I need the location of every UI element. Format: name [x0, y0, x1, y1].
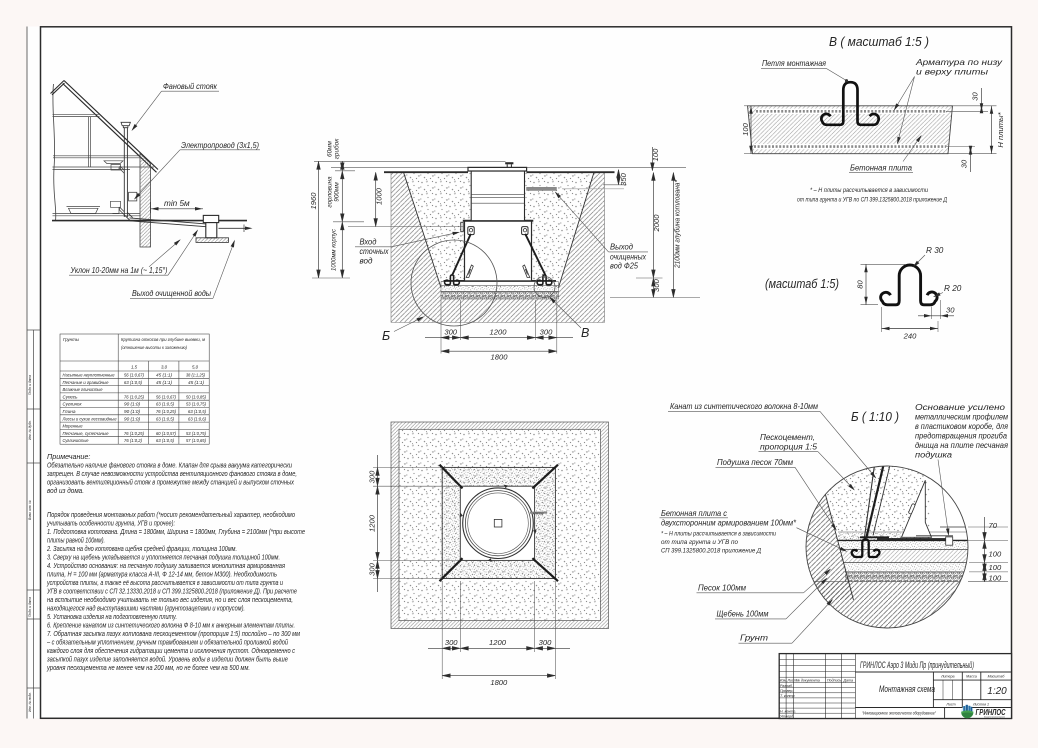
svg-text:клапан: клапан	[533, 512, 544, 516]
svg-text:(масштаб 1:5): (масштаб 1:5)	[765, 277, 839, 291]
svg-text:Щебень 100мм: Щебень 100мм	[717, 610, 769, 619]
svg-text:ГРИНЛОС Аэро 3 Миди Пр (принуд: ГРИНЛОС Аэро 3 Миди Пр (принудительный)	[860, 660, 974, 670]
svg-text:900мм: 900мм	[334, 182, 341, 202]
svg-text:Н. контр.: Н. контр.	[780, 709, 796, 713]
svg-text:53 (1:0,75): 53 (1:0,75)	[186, 402, 206, 407]
svg-text:Литера: Литера	[940, 675, 954, 679]
svg-text:организовать вентиляционный ст: организовать вентиляционный стояк в пром…	[47, 478, 294, 487]
svg-text:Суглинистые: Суглинистые	[63, 438, 90, 443]
svg-text:Основание усилено: Основание усилено	[915, 403, 1006, 412]
svg-text:Масса: Масса	[966, 675, 977, 679]
svg-text:53 (1:0,75): 53 (1:0,75)	[186, 431, 206, 436]
svg-text:50 (1:0,85): 50 (1:0,85)	[186, 394, 206, 399]
svg-text:63 (1:0,5): 63 (1:0,5)	[156, 438, 175, 443]
svg-text:СП 399.1325800.2018 приложение: СП 399.1325800.2018 приложение Д	[661, 548, 761, 555]
svg-text:Глина: Глина	[63, 409, 77, 414]
svg-text:* – Н плиты рассчитывается в з: * – Н плиты рассчитывается в зависимости	[661, 531, 776, 538]
svg-text:Лессы и сухие лессовидные: Лессы и сухие лессовидные	[62, 416, 117, 421]
svg-text:Подп. и дата: Подп. и дата	[28, 375, 32, 395]
svg-text:300: 300	[540, 328, 553, 337]
svg-text:56 (1:0,67): 56 (1:0,67)	[156, 394, 176, 399]
svg-text:уровня пескоцемента не менее ч: уровня пескоцемента не менее чем на 200 …	[46, 663, 250, 672]
svg-text:подушка: подушка	[915, 451, 952, 460]
svg-text:Пескоцемент,: Пескоцемент,	[760, 433, 815, 442]
svg-text:1200: 1200	[489, 638, 507, 647]
svg-text:Бетонная плита: Бетонная плита	[850, 164, 912, 173]
svg-text:Утверд.: Утверд.	[780, 714, 794, 718]
svg-text:90 (1:0): 90 (1:0)	[124, 409, 141, 414]
svg-text:300: 300	[368, 562, 377, 575]
svg-text:300: 300	[539, 638, 552, 647]
svg-text:63 (1:0,5): 63 (1:0,5)	[156, 416, 175, 421]
svg-text:38 (1:1,25): 38 (1:1,25)	[186, 373, 205, 378]
svg-text:76 (1:0,25): 76 (1:0,25)	[156, 409, 176, 414]
svg-text:В: В	[581, 326, 589, 340]
svg-text:56 (1:0,67): 56 (1:0,67)	[124, 373, 144, 378]
svg-text:1000мм корпус: 1000мм корпус	[331, 228, 338, 271]
svg-text:Петля монтажная: Петля монтажная	[762, 59, 827, 68]
svg-text:вод Ф25: вод Ф25	[610, 262, 638, 271]
svg-text:Вход: Вход	[360, 238, 377, 247]
svg-text:вод из дома.: вод из дома.	[47, 486, 84, 495]
svg-text:min 5м: min 5м	[164, 199, 190, 208]
svg-text:Масштаб: Масштаб	[988, 675, 1006, 679]
svg-text:Канат из синтетического волокн: Канат из синтетического волокна 8-10мм	[670, 402, 818, 411]
svg-text:Песчаные, супесчаные: Песчаные, супесчаные	[63, 431, 110, 436]
svg-text:днища на плите песчаная: днища на плите песчаная	[915, 441, 1009, 450]
svg-text:"Инновационное экологическое о: "Инновационное экологическое оборудовани…	[862, 711, 936, 716]
svg-text:Крутизна откосов при глубине в: Крутизна откосов при глубине выемки, м	[121, 337, 205, 342]
svg-text:30: 30	[946, 306, 955, 315]
svg-text:Уклон 10-20мм на 1м (~ 1,15°): Уклон 10-20мм на 1м (~ 1,15°)	[70, 266, 168, 275]
svg-text:Взам. инв. №: Взам. инв. №	[28, 500, 32, 520]
svg-text:57 (1:0,65): 57 (1:0,65)	[186, 438, 206, 443]
svg-text:63 (1:0,5): 63 (1:0,5)	[188, 409, 207, 414]
svg-text:76 (1:0,2): 76 (1:0,2)	[124, 438, 143, 443]
svg-text:Влажные глинистые: Влажные глинистые	[63, 387, 104, 392]
svg-text:3,0: 3,0	[161, 365, 168, 370]
svg-text:30: 30	[971, 92, 980, 101]
svg-text:2100мм глубина котлована*: 2100мм глубина котлована*	[673, 179, 682, 269]
svg-text:пропорция 1:5: пропорция 1:5	[760, 443, 817, 452]
svg-text:Н плиты*: Н плиты*	[996, 111, 1005, 147]
svg-text:100: 100	[989, 563, 1002, 572]
svg-text:Песчаные и гравийные: Песчаные и гравийные	[63, 380, 110, 385]
svg-text:Подушка песок 70мм: Подушка песок 70мм	[717, 458, 793, 467]
svg-text:63 (1:0,5): 63 (1:0,5)	[124, 380, 143, 385]
svg-text:1960: 1960	[309, 192, 318, 210]
svg-text:Дата: Дата	[843, 679, 853, 683]
svg-text:76 (1:0,25): 76 (1:0,25)	[124, 431, 144, 436]
svg-text:Монтажная схема: Монтажная схема	[879, 684, 935, 694]
svg-text:* – Н плиты рассчитывается в з: * – Н плиты рассчитывается в зависимости	[810, 187, 928, 194]
svg-text:Инв. № подл.: Инв. № подл.	[28, 692, 32, 712]
svg-text:грибок: грибок	[333, 138, 341, 159]
svg-text:в пластиковом коробе, для: в пластиковом коробе, для	[915, 422, 1009, 431]
svg-text:300: 300	[368, 470, 377, 483]
svg-text:Насыпные неуплотненные: Насыпные неуплотненные	[63, 373, 116, 378]
svg-text:Грунт: Грунт	[740, 634, 768, 643]
svg-text:очищенных: очищенных	[610, 252, 647, 261]
svg-text:100: 100	[741, 122, 750, 135]
svg-text:R 30: R 30	[926, 246, 944, 255]
svg-text:металлическим профилем: металлическим профилем	[915, 413, 1008, 422]
svg-text:63 (1:0,5): 63 (1:0,5)	[156, 402, 175, 407]
svg-text:60 (1:0,57): 60 (1:0,57)	[156, 431, 176, 436]
svg-text:Моренные: Моренные	[63, 424, 84, 429]
svg-text:от типа грунта и УГВ по: от типа грунта и УГВ по	[661, 539, 738, 546]
svg-text:45 (1:1): 45 (1:1)	[188, 380, 205, 385]
svg-text:300: 300	[445, 638, 458, 647]
svg-text:предотвращения прогиба: предотвращения прогиба	[915, 432, 1007, 441]
svg-text:Б: Б	[382, 329, 390, 343]
svg-text:R 20: R 20	[944, 284, 962, 293]
svg-text:Супесь: Супесь	[63, 394, 79, 399]
svg-text:Выход: Выход	[610, 243, 633, 252]
svg-text:двухсторонним армированием 100: двухсторонним армированием 100мм*	[661, 519, 797, 528]
svg-text:100: 100	[989, 550, 1002, 559]
svg-text:Провер.: Провер.	[780, 689, 793, 693]
svg-text:1800: 1800	[491, 353, 509, 362]
svg-text:80: 80	[856, 280, 865, 289]
svg-text:1:20: 1:20	[987, 686, 1007, 697]
svg-text:и верху плиты: и верху плиты	[916, 68, 988, 77]
svg-text:1,5: 1,5	[131, 365, 138, 370]
svg-text:Изм.Лист: Изм.Лист	[780, 679, 797, 683]
svg-text:30: 30	[960, 159, 969, 168]
svg-text:В ( масштаб 1:5 ): В ( масштаб 1:5 )	[829, 35, 929, 49]
svg-text:от типа грунта и УГВ по СП 399: от типа грунта и УГВ по СП 399.1325800.2…	[797, 197, 947, 204]
svg-text:Грунты: Грунты	[63, 337, 80, 342]
svg-text:60мм: 60мм	[327, 140, 334, 156]
svg-text:Т. контр: Т. контр	[780, 694, 795, 698]
svg-text:70: 70	[989, 521, 998, 530]
svg-text:горловина: горловина	[327, 176, 334, 208]
svg-text:Фановый стояк: Фановый стояк	[163, 82, 218, 91]
svg-text:300: 300	[652, 278, 661, 291]
svg-text:(отношение высоты к заложению): (отношение высоты к заложению)	[121, 345, 187, 350]
svg-text:1800: 1800	[490, 678, 508, 687]
svg-text:63 (1:0,6): 63 (1:0,6)	[188, 416, 207, 421]
svg-text:1200: 1200	[490, 328, 508, 337]
svg-text:Электропровод (3х1,5): Электропровод (3х1,5)	[181, 141, 259, 150]
svg-text:Бетонная плита с: Бетонная плита с	[661, 509, 727, 518]
svg-text:Арматура по низу: Арматура по низу	[915, 58, 1003, 67]
svg-text:ГРИНЛОС: ГРИНЛОС	[976, 708, 1006, 717]
svg-text:300: 300	[444, 328, 457, 337]
svg-text:Листов 1: Листов 1	[972, 703, 989, 707]
svg-text:90 (1:0): 90 (1:0)	[124, 402, 141, 407]
svg-text:№ документа: № документа	[796, 679, 820, 683]
svg-text:45 (1:1): 45 (1:1)	[156, 380, 173, 385]
svg-text:Подпись: Подпись	[827, 679, 841, 683]
svg-text:вод: вод	[360, 256, 373, 265]
svg-text:Разраб.: Разраб.	[780, 684, 793, 688]
svg-text:1200: 1200	[368, 514, 377, 532]
svg-text:100: 100	[989, 574, 1002, 583]
svg-text:90 (1:0): 90 (1:0)	[124, 416, 141, 421]
svg-text:2000: 2000	[652, 214, 661, 233]
svg-text:Инновационное экологическое об: Инновационное экологическое оборудование	[984, 716, 1005, 719]
svg-text:Инв. № дубл.: Инв. № дубл.	[28, 420, 32, 440]
svg-text:350: 350	[619, 172, 628, 185]
svg-text:Песок 100мм: Песок 100мм	[698, 584, 746, 593]
svg-text:1000: 1000	[375, 187, 384, 205]
svg-text:5,0: 5,0	[192, 365, 199, 370]
svg-text:Лист: Лист	[945, 703, 955, 707]
svg-text:100: 100	[651, 148, 660, 161]
svg-text:Подп. и дата: Подп. и дата	[28, 597, 32, 617]
svg-text:сточных: сточных	[360, 247, 390, 256]
svg-text:Выход очищенной воды: Выход очищенной воды	[132, 289, 211, 298]
svg-text:Суглинок: Суглинок	[63, 402, 83, 407]
svg-text:Б ( 1:10 ): Б ( 1:10 )	[851, 410, 899, 424]
svg-text:240: 240	[903, 332, 917, 341]
svg-text:45 (1:1): 45 (1:1)	[156, 373, 173, 378]
svg-text:76 (1:0,25): 76 (1:0,25)	[124, 394, 144, 399]
